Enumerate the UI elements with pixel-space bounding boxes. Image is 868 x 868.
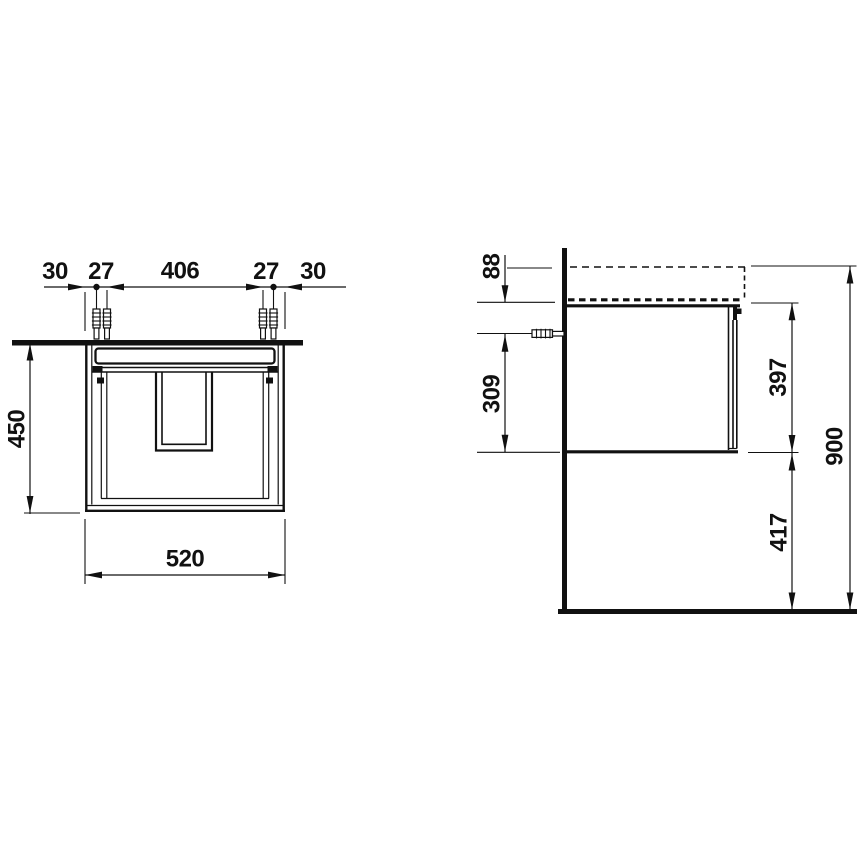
anchor-icon-side	[477, 329, 564, 339]
dim-label-397: 397	[765, 358, 792, 397]
arrow-up-icon	[502, 335, 509, 352]
front-notch-tab	[737, 309, 742, 315]
cabinet-side	[567, 306, 742, 452]
countertop-dashed-outline	[568, 267, 745, 301]
dim-clearance-417: 417	[766, 452, 796, 610]
slide-block-right	[266, 378, 273, 384]
siphon-cutout-outer	[156, 372, 212, 451]
dim-total-height-900: 900	[751, 266, 857, 611]
dim-label-88: 88	[479, 254, 506, 280]
dim-height-450: 450	[4, 343, 81, 514]
front-view: 30 27 406 27 30 450 520	[4, 258, 347, 585]
side-view: 88 309 397 417	[477, 248, 857, 614]
dim-top-chain: 30 27 406 27 30	[42, 258, 346, 332]
arrow-up-icon	[27, 344, 34, 361]
dim-fixing-309: 309	[477, 334, 560, 453]
dim-label-900: 900	[822, 427, 849, 466]
dim-label-406: 406	[161, 258, 200, 285]
arrow-down-icon	[847, 593, 854, 610]
countertop	[12, 340, 303, 346]
arrow-left-icon	[85, 572, 102, 579]
arrow-right-icon	[268, 572, 285, 579]
arrow-down-icon	[789, 593, 796, 610]
anchor-icon	[258, 290, 267, 339]
dim-width-520: 520	[85, 519, 285, 584]
rail-bracket-right	[268, 366, 278, 373]
dim-cabinet-height-397: 397	[748, 303, 799, 453]
cabinet-front	[85, 345, 285, 512]
arrow-down-icon	[27, 496, 34, 513]
dim-top-offset-88: 88	[477, 254, 555, 303]
dim-label-309: 309	[479, 375, 506, 414]
anchor-icon	[269, 290, 278, 339]
dim-label-450: 450	[4, 410, 31, 449]
dim-label-30-left: 30	[42, 258, 68, 285]
arrow-up-icon	[789, 303, 796, 320]
drawer-top-rail	[96, 349, 275, 364]
dim-label-27-left: 27	[88, 258, 114, 285]
arrow-down-icon	[789, 435, 796, 452]
slide-block-left	[97, 378, 104, 384]
dim-label-417: 417	[766, 513, 793, 552]
dim-label-27-right: 27	[253, 258, 279, 285]
dim-label-520: 520	[166, 546, 205, 573]
fixing-anchors-front	[92, 290, 278, 339]
arrow-up-icon	[789, 454, 796, 471]
anchor-icon	[102, 290, 111, 339]
arrow-down-icon	[502, 435, 509, 452]
anchor-icon	[92, 290, 101, 339]
siphon-cutout-inner	[162, 372, 206, 444]
arrow-down-icon	[502, 285, 509, 302]
arrow-right-icon	[68, 284, 85, 291]
dim-label-30-right: 30	[300, 258, 326, 285]
technical-drawing: 30 27 406 27 30 450 520	[0, 0, 868, 868]
rail-bracket-left	[93, 366, 103, 373]
arrow-up-icon	[847, 267, 854, 284]
